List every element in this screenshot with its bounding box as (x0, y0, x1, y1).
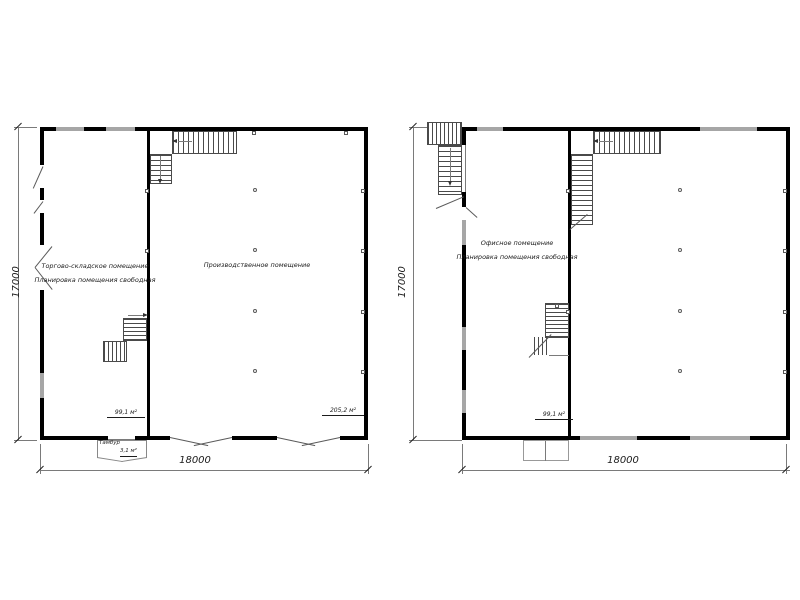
wall-pilaster-mark (783, 370, 787, 374)
wall-opening-line (465, 145, 466, 192)
dimension-line (413, 127, 414, 441)
wall-pilaster-mark (783, 310, 787, 314)
stair-direction-line (599, 141, 613, 142)
wall-pilaster-mark (783, 189, 787, 193)
door-leaf-line (466, 207, 478, 218)
drawing-canvas: Торгово-складское помещение Планировка п… (0, 0, 800, 600)
second-floor-plan: Офисное помещение Планировка помещения с… (0, 0, 800, 600)
window-segment (690, 436, 750, 440)
window-segment (700, 127, 757, 131)
vestibule-roof-outline (523, 440, 569, 461)
window-segment (477, 127, 503, 131)
stair-flight-upper (593, 131, 661, 154)
exterior-wall-left-segment (462, 413, 466, 440)
stair-direction-arrow (448, 181, 452, 186)
stair-flight-lower (571, 154, 593, 225)
wall-pilaster-mark (566, 189, 570, 193)
stair-direction-arrow (593, 139, 598, 143)
exterior-wall-right (786, 127, 790, 440)
stair-flight (545, 303, 569, 338)
stair-break-line (436, 196, 464, 209)
exterior-wall-left-segment (462, 127, 466, 145)
vestibule-roof-divider (545, 441, 546, 461)
window-segment (462, 390, 466, 413)
wall-pilaster-mark (783, 249, 787, 253)
dimension-line (462, 470, 790, 471)
exterior-wall-left-segment (462, 350, 466, 390)
stair-landing (427, 122, 462, 145)
column-dot (678, 369, 682, 373)
room-label: Офисное помещение (459, 240, 575, 247)
window-segment (580, 436, 637, 440)
dimension-label: 17000 (398, 257, 408, 307)
column-dot (678, 309, 682, 313)
stair-start-mark (555, 304, 559, 308)
column-dot (678, 188, 682, 192)
stair-direction-line (450, 148, 451, 182)
exterior-wall-left-segment (462, 192, 466, 207)
window-segment (462, 327, 466, 350)
wall-pilaster-mark (566, 310, 570, 314)
room-area-label: 99,1 м² (535, 412, 573, 420)
extension-line (409, 440, 462, 441)
room-label: Планировка помещения свободная (452, 254, 582, 261)
stair-edge-line (549, 355, 569, 356)
column-dot (678, 248, 682, 252)
dimension-label: 18000 (593, 456, 653, 466)
